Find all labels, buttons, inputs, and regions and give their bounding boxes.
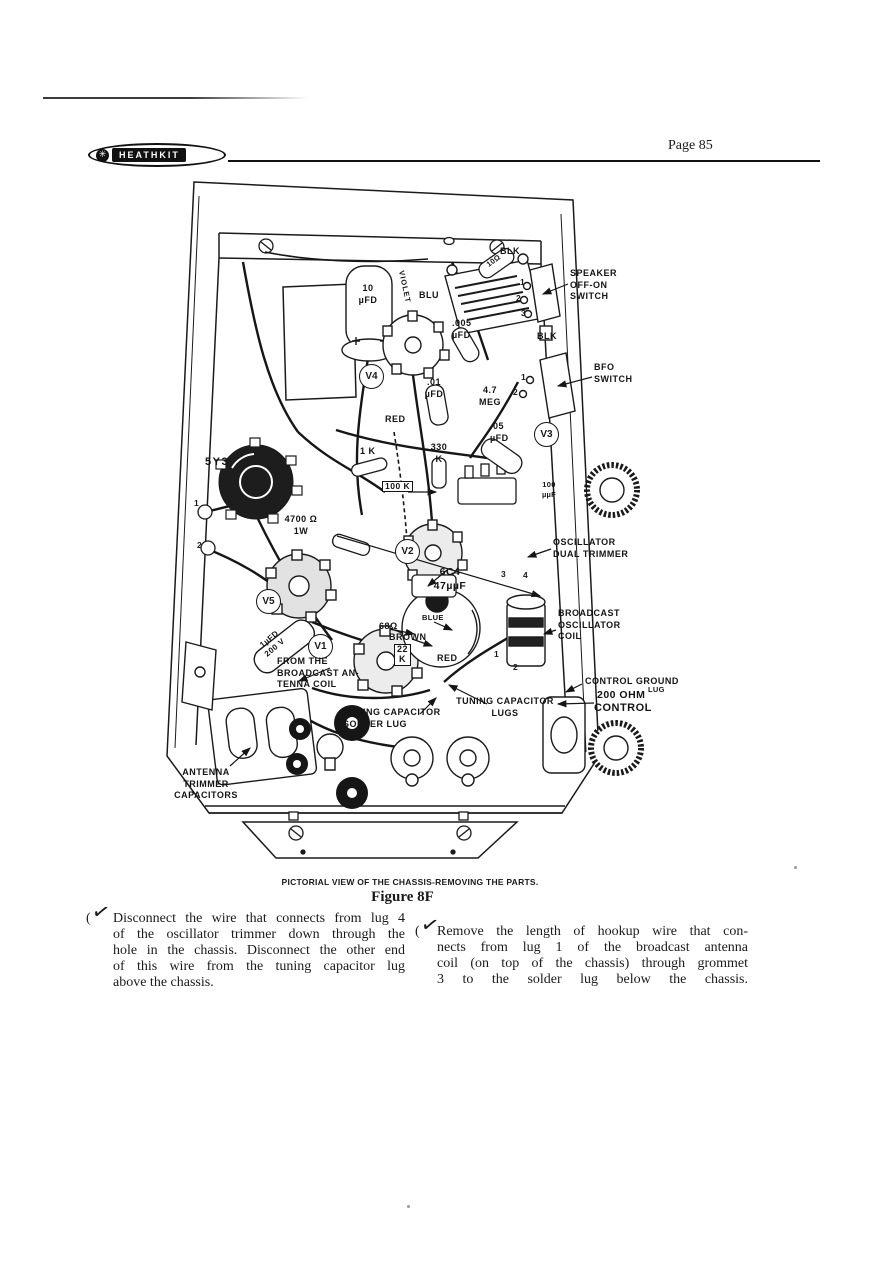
figure-caption: PICTORIAL VIEW OF THE CHASSIS-REMOVING T… — [0, 877, 820, 887]
label-bfo-switch: BFO SWITCH — [594, 362, 633, 385]
instruction-line: Disconnect the wire that connects from l… — [113, 911, 405, 927]
label-tube-5y3: 5Y3 — [205, 455, 229, 469]
lug-number: 1 — [521, 372, 526, 382]
broadcast-oscillator-coil-part — [507, 595, 545, 666]
label-cap-10ufd: 10 µFD — [352, 283, 384, 306]
checkbox-left: ( ✓ — [86, 911, 91, 927]
label-res-4-7meg: 4.7 MEG — [475, 385, 505, 408]
lug-number: 1 — [520, 277, 525, 287]
instruction-line: Remove the length of hookup wire that co… — [437, 924, 748, 940]
label-control-ground-lug: LUG — [648, 685, 665, 695]
lug-number: 1 — [194, 498, 199, 508]
label-antenna-trimmers: ANTENNA TRIMMER CAPACITORS — [168, 767, 244, 802]
label-wire-red-upper: RED — [385, 414, 406, 426]
label-blk-mid: BLK — [537, 331, 557, 343]
label-tuning-lugs: TUNING CAPACITOR LUGS — [455, 696, 555, 719]
bfo-switch-part — [520, 353, 576, 418]
label-res-4700: 4700 Ω 1W — [279, 514, 323, 537]
mounting-bracket — [182, 642, 216, 710]
figure-title: Figure 8F — [0, 889, 805, 906]
chassis-line-art — [0, 0, 893, 1263]
instruction-left: Disconnect the wire that connects from l… — [113, 911, 405, 991]
label-res-22k: 22 K — [394, 644, 411, 666]
label-cap-005ufd: .005 µFD — [452, 318, 472, 341]
instruction-line: above the chassis. — [113, 975, 405, 991]
lug-number: 2 — [197, 540, 202, 550]
label-speaker-switch: SPEAKER OFF-ON SWITCH — [570, 268, 617, 303]
instruction-line: hole in the chassis. Disconnect the othe… — [113, 943, 405, 959]
label-res-68: 68Ω — [379, 621, 398, 633]
scan-speck — [407, 1205, 410, 1208]
label-oscillator-trimmer: OSCILLATOR DUAL TRIMMER — [553, 537, 628, 560]
label-blk-top: BLK — [500, 246, 520, 258]
manual-page: ✳ HEATHKIT Page 85 — [0, 0, 893, 1263]
label-tuning-solder-lug: TUNING CAPACITOR SOLDER LUG — [343, 707, 441, 730]
label-tube-v5: V5 — [256, 589, 281, 614]
label-cap-100uuf: 100 µµF — [536, 480, 562, 500]
label-wire-blue: BLUE — [422, 613, 444, 623]
lug-number: 3 — [501, 569, 506, 579]
instruction-line: 3 to the solder lug below the chassis. — [437, 972, 748, 988]
instruction-line: coil (on top of the chassis) through gro… — [437, 956, 748, 972]
label-tube-v4: V4 — [359, 364, 384, 389]
label-control-ground: CONTROL GROUND — [585, 676, 679, 688]
instruction-line: nects from lug 1 of the broadcast antenn… — [437, 940, 748, 956]
label-cap-01ufd: .01 µFD — [420, 377, 448, 400]
lug-number: 2 — [516, 293, 521, 303]
instruction-line: of this wire from the tuning capacitor l… — [113, 959, 405, 975]
label-res-330k: 330 K — [426, 442, 452, 465]
label-broadcast-coil: BROADCAST OSCILLATOR COIL — [558, 608, 621, 643]
tube-socket-v4 — [383, 311, 449, 378]
label-tube-v2: V2 — [395, 539, 420, 564]
label-res-100k: 100 K — [382, 481, 413, 492]
lug-number: 4 — [523, 570, 528, 580]
label-cap-05ufd: .05 µFD — [490, 421, 509, 444]
label-from-antenna: FROM THE BROADCAST AN- TENNA COIL — [277, 656, 359, 691]
label-wire-red-lower: RED — [437, 653, 458, 665]
chassis-figure: BLK SPEAKER OFF-ON SWITCH BLK BFO SWITCH… — [0, 0, 893, 1263]
lug-number: 2 — [513, 662, 518, 672]
label-tube-6c4: 6C4 47µµF — [428, 566, 472, 593]
tube-socket-v5 — [266, 550, 336, 622]
label-wire-brown: BROWN — [389, 632, 427, 644]
label-res-1k: 1 K — [360, 446, 376, 458]
instruction-line: of the oscillator trimmer down through t… — [113, 927, 405, 943]
lug-number: 3 — [521, 308, 526, 318]
lug-number: 2 — [513, 387, 518, 397]
label-tube-v3: V3 — [534, 422, 559, 447]
instruction-right: Remove the length of hookup wire that co… — [437, 924, 748, 988]
label-wire-blu: BLU — [419, 290, 439, 302]
label-control: CONTROL — [594, 701, 652, 715]
checkbox-right: ( ✓ — [415, 924, 420, 940]
scan-speck — [794, 866, 797, 869]
lug-number: 1 — [494, 649, 499, 659]
tube-socket-5y3 — [216, 438, 302, 523]
